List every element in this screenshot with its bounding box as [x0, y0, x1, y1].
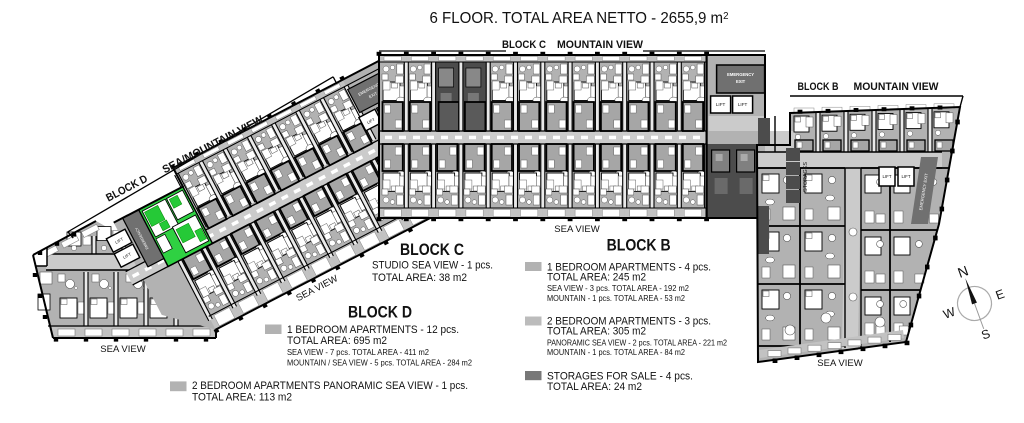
svg-text:BLOCK B: BLOCK B	[607, 237, 671, 255]
svg-text:TOTAL AREA: 38 m2: TOTAL AREA: 38 m2	[372, 272, 467, 284]
svg-text:LIFT: LIFT	[738, 102, 748, 107]
svg-text:TOTAL AREA: 695 m2: TOTAL AREA: 695 m2	[287, 335, 387, 347]
svg-text:LIFT: LIFT	[882, 174, 891, 179]
svg-text:LIFT: LIFT	[716, 102, 726, 107]
svg-text:TOTAL AREA: 24 m2: TOTAL AREA: 24 m2	[547, 381, 642, 393]
svg-text:BLOCK C: BLOCK C	[502, 39, 546, 51]
svg-text:EMERGENCY: EMERGENCY	[727, 72, 754, 77]
svg-text:EXIT: EXIT	[736, 79, 746, 84]
svg-text:BLOCK D: BLOCK D	[348, 304, 412, 322]
svg-text:SEA VIEW - 7 pcs. TOTAL AREA -: SEA VIEW - 7 pcs. TOTAL AREA - 411 m2	[287, 347, 429, 357]
svg-text:MOUNTAIN - 1 pcs. TOTAL AREA -: MOUNTAIN - 1 pcs. TOTAL AREA - 84 m2	[547, 347, 685, 357]
svg-text:SEA VIEW - 3 pcs. TOTAL AREA -: SEA VIEW - 3 pcs. TOTAL AREA - 192 m2	[547, 283, 689, 293]
svg-text:TOTAL AREA: 245 m2: TOTAL AREA: 245 m2	[547, 272, 646, 284]
svg-text:MOUNTAIN - 1 pcs. TOTAL AREA -: MOUNTAIN - 1 pcs. TOTAL AREA - 53 m2	[547, 293, 685, 303]
svg-text:STORAGES: STORAGES	[803, 162, 809, 192]
svg-text:6 FLOOR. TOTAL AREA NETTO - 26: 6 FLOOR. TOTAL AREA NETTO - 2655,9 m2	[430, 10, 729, 27]
svg-text:TOTAL AREA: 305 m2: TOTAL AREA: 305 m2	[547, 326, 646, 338]
svg-text:BLOCK B: BLOCK B	[798, 81, 839, 93]
svg-text:STUDIO SEA VIEW - 1 pcs.: STUDIO SEA VIEW - 1 pcs.	[372, 260, 493, 272]
svg-text:SEA VIEW: SEA VIEW	[554, 224, 599, 235]
svg-text:SEA VIEW: SEA VIEW	[100, 344, 145, 355]
svg-text:2 BEDROOM APARTMENTS PANORAMIC: 2 BEDROOM APARTMENTS PANORAMIC SEA VIEW …	[192, 380, 468, 392]
svg-text:SEA VIEW: SEA VIEW	[817, 358, 862, 369]
svg-text:MOUNTAIN VIEW: MOUNTAIN VIEW	[557, 39, 644, 51]
svg-text:MOUNTAIN / SEA VIEW - 5 pcs. T: MOUNTAIN / SEA VIEW - 5 pcs. TOTAL AREA …	[287, 358, 472, 368]
svg-text:PANORAMIC SEA VIEW - 2 pcs. TO: PANORAMIC SEA VIEW - 2 pcs. TOTAL AREA -…	[547, 337, 727, 347]
svg-text:TOTAL AREA: 113 m2: TOTAL AREA: 113 m2	[192, 392, 292, 404]
svg-text:LIFT: LIFT	[901, 174, 910, 179]
svg-text:MOUNTAIN VIEW: MOUNTAIN VIEW	[854, 81, 940, 93]
svg-text:BLOCK C: BLOCK C	[400, 241, 464, 259]
